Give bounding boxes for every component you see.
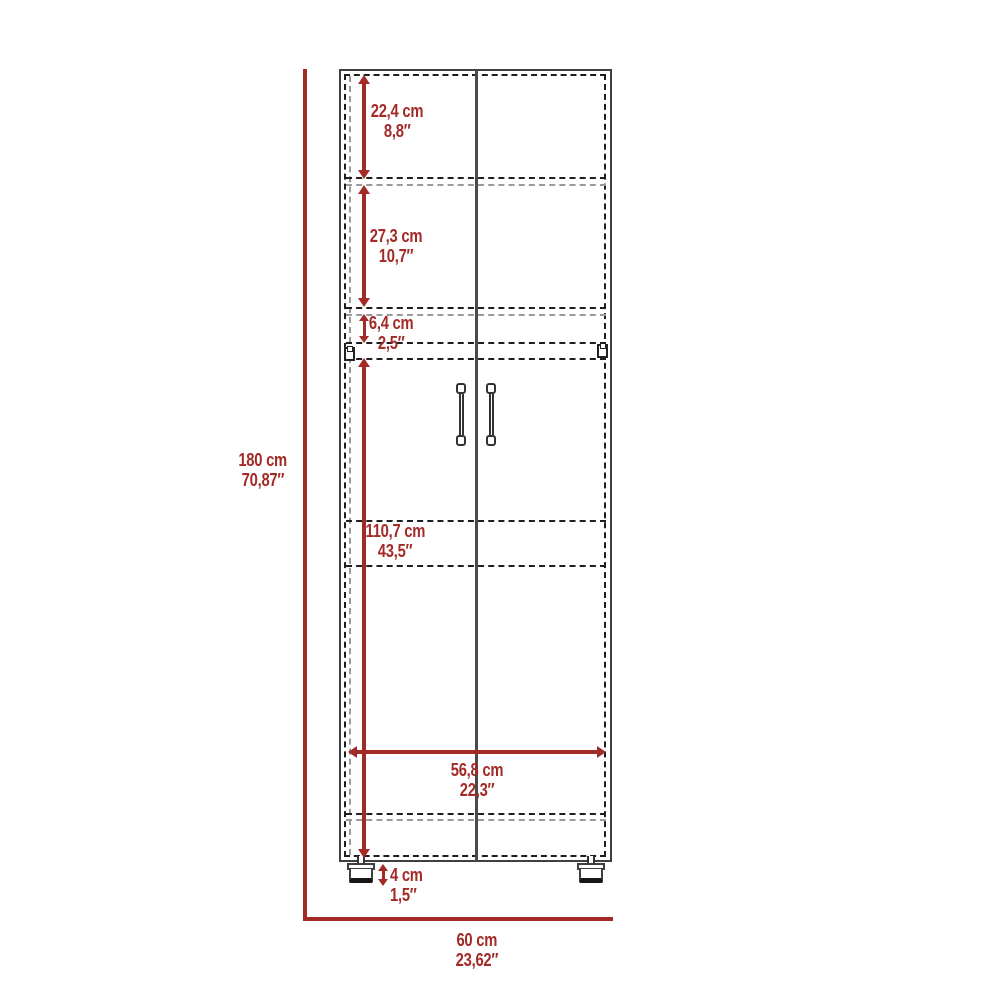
right-door-handle [486,383,496,446]
dim-label-leg-height: 4 cm 1,5″ [390,865,490,905]
dim-second-section-cm: 27,3 cm [370,226,422,246]
width-dimension-line [303,917,613,921]
dim-inner-width-inch: 22,3″ [460,780,495,800]
right-foot [577,856,607,888]
handle-bottom-knob [456,435,466,446]
left-panel-dashed-line [349,76,351,855]
shelf-dashed-line-7b [346,819,606,821]
shelf-dashed-line-4 [346,358,606,360]
right-hinge [597,344,608,358]
shelf-dashed-line-7 [346,813,606,815]
shelf-dashed-line-6 [346,565,606,567]
dim-top-section-cm: 22,4 cm [371,101,423,121]
dim-inner-width-cm: 56,8 cm [451,760,503,780]
left-foot [347,856,377,888]
arrow-leg-height [378,864,388,886]
dim-label-inner-width: 56,8 cm 22,3″ [407,760,547,800]
cabinet-dimension-diagram: 22,4 cm 8,8″ 27,3 cm 10,7″ 6,4 cm 2,5″ 1… [0,0,1000,1000]
handle-rod [459,394,464,435]
dim-label-overall-width: 60 cm 23,62″ [407,930,547,970]
dim-label-overall-height: 180 cm 70,87″ [193,450,333,490]
dim-label-small-gap: 6,4 cm 2,5″ [321,313,461,353]
dim-overall-width-inch: 23,62″ [456,950,499,970]
dim-label-door-section: 110,7 cm 43,5″ [325,521,465,561]
handle-top-knob [486,383,496,394]
dim-label-top-section: 22,4 cm 8,8″ [327,101,467,141]
dim-overall-height-cm: 180 cm [239,450,288,470]
foot-body [349,869,373,883]
foot-body [579,869,603,883]
dim-leg-height-cm: 4 cm [390,865,423,885]
left-door-handle [456,383,466,446]
height-dimension-line [303,69,307,921]
dim-small-gap-cm: 6,4 cm [369,313,413,333]
dim-overall-width-cm: 60 cm [457,930,498,950]
dim-label-second-section: 27,3 cm 10,7″ [326,226,466,266]
dim-leg-height-inch: 1,5″ [390,885,417,905]
dim-overall-height-inch: 70,87″ [242,470,285,490]
dim-small-gap-inch: 2,5″ [378,333,405,353]
handle-top-knob [456,383,466,394]
handle-bottom-knob [486,435,496,446]
dim-door-section-inch: 43,5″ [378,541,413,561]
door-gap-center-line [475,70,478,861]
shelf-dashed-line-2 [346,307,606,309]
shelf-dashed-line-1b [346,184,606,186]
dim-top-section-inch: 8,8″ [384,121,411,141]
shelf-dashed-line-1 [346,177,606,179]
arrow-inner-width [348,746,606,758]
dim-door-section-cm: 110,7 cm [365,521,425,541]
handle-rod [489,394,494,435]
dim-second-section-inch: 10,7″ [379,246,414,266]
arrow-door-section [358,358,370,858]
